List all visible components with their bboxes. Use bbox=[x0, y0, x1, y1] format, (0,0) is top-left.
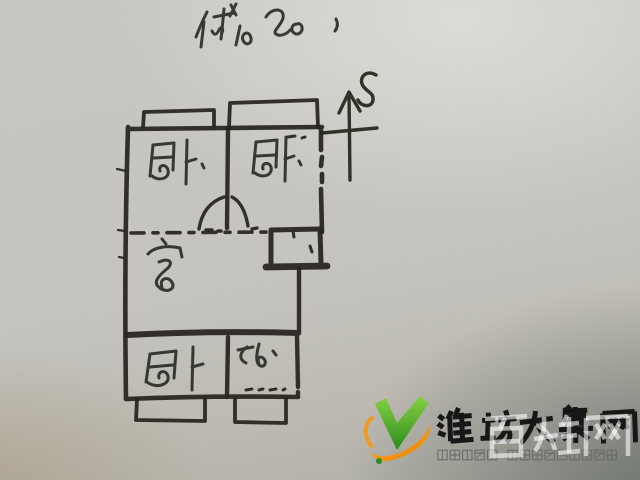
arrow-shaft bbox=[349, 93, 350, 180]
sketch-canvas bbox=[0, 0, 640, 480]
photo-of-floorplan-sketch: 储 20、 S 卧 卧 客 卧 卫 潍坊大集网 潍坊信息网 潍坊百姓的网上大集 … bbox=[0, 0, 640, 480]
swoosh-tail-dot bbox=[376, 458, 382, 464]
